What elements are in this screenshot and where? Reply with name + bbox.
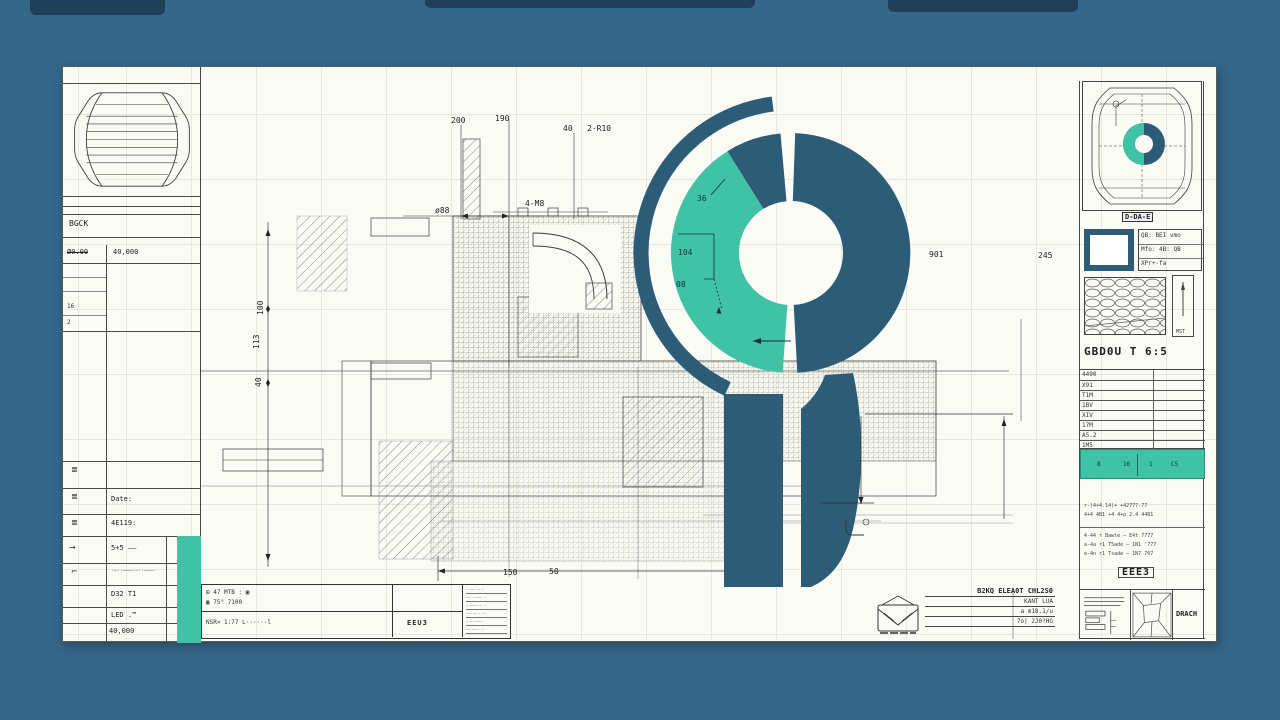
note-row: e-4n r1 Tsade — 1N7 707 — [1084, 551, 1202, 557]
micro-text-line: –– ––– – – — [466, 627, 507, 634]
drawing-sheet: 200 190 40 2-R10 ø88 4-M8 100 113 40 150… — [62, 66, 1217, 642]
approval-text-block: B2KQ ELEA0T CHL2S0 KANT LUA a m18.1/u 7o… — [925, 586, 1055, 627]
mini-logo-hole — [1135, 135, 1153, 153]
panel-header-label: BGCK — [69, 219, 88, 228]
drawing-title-text: B2KQ ELEA0T CHL2S0 — [925, 586, 1055, 597]
teal-cell: C5 — [1171, 461, 1178, 468]
spec-row-label: 1M5 — [1082, 442, 1093, 449]
right-info-panel: D-DA-E QB: BEI vmo Mfo: 4B: QB XPr+-fa — [1079, 81, 1204, 639]
dim-label: 150 — [503, 568, 518, 577]
row-label: LED .™ — [111, 611, 136, 619]
view-tag-label: D-DA-E — [1122, 212, 1153, 222]
logo-dark-ring-right — [793, 133, 911, 373]
spec-table: 4490 X91 T1M 1BV XIV 17M A5.2 1M5 — [1080, 369, 1205, 449]
dim-label: 4-M8 — [525, 199, 544, 208]
teal-highlight-row: 8 16 1 C5 — [1080, 449, 1205, 479]
spec-value: 40,000 — [113, 248, 138, 256]
machined-part-section-view — [201, 119, 1021, 639]
dim-label: 190 — [495, 114, 510, 123]
stamp-code-label: EEE3 — [1118, 567, 1154, 578]
corner-symbol-icon: ⌐ — [71, 567, 78, 576]
row-label: ·–··–––·–··–––· — [111, 568, 165, 574]
title-block-text: ▣ 75° 7100 — [206, 599, 242, 606]
dim-label: ø88 — [435, 206, 450, 215]
title-block-table: ⊞ 47 MTB : ▣ ▣ 75° 7100 NSR× 1:77 L·····… — [201, 584, 511, 639]
hatch-symbol-icon: ≣ — [71, 465, 80, 474]
row-label: 5+5 —— — [111, 544, 136, 552]
sub-value: 2 — [67, 319, 71, 326]
teal-cell: 1 — [1149, 461, 1153, 468]
dim-label: 36 — [697, 194, 707, 203]
micro-text-line: – –––– –– – — [466, 603, 507, 610]
probe-needle-drawing — [1173, 276, 1193, 336]
spec-row-label: 4490 — [1082, 371, 1096, 378]
legend-row: QB: BEI vmo — [1141, 232, 1181, 239]
spec-row-label: A5.2 — [1082, 432, 1096, 439]
title-block-text: ⊞ 47 MTB : ▣ — [206, 589, 249, 596]
blueprint-wallpaper: 200 190 40 2-R10 ø88 4-M8 100 113 40 150… — [0, 0, 1280, 720]
dim-label: 100 — [256, 300, 265, 315]
part-front-view-drawing — [71, 87, 193, 192]
dim-label: 245 — [1038, 251, 1053, 260]
spec-label: Ø0.00 — [67, 248, 88, 256]
sub-value: 16 — [67, 303, 74, 310]
dim-label: 2-R10 — [587, 124, 611, 133]
micro-text-line: –– – –––– – — [466, 595, 507, 602]
ink-smudge — [888, 0, 1078, 12]
legend-swatch — [1084, 229, 1134, 271]
schedule-lines-drawing — [1082, 592, 1128, 638]
technical-drawing-canvas: 200 190 40 2-R10 ø88 4-M8 100 113 40 150… — [63, 67, 1218, 643]
approval-row: KANT LUA — [925, 597, 1055, 607]
dim-label: 901 — [929, 250, 944, 259]
approval-row: a m18.1/u — [925, 607, 1055, 617]
note-row: a-4a r1 T5ade — 1N1 '777 — [1084, 542, 1202, 548]
micro-note: r-(4+4.14)+ +42777-77 — [1084, 503, 1202, 509]
legend-row: Mfo: 4B: QB — [1141, 246, 1181, 253]
dim-label: 200 — [451, 116, 466, 125]
dim-label: 40 — [254, 377, 263, 387]
title-block-text: NSR× 1:77 L······l — [206, 619, 271, 626]
spec-row-label: T1M — [1082, 392, 1093, 399]
note-row: 4-44 r Bawte — E4t 7777 — [1084, 533, 1202, 539]
ink-smudge — [425, 0, 755, 8]
teal-accent-column — [177, 536, 201, 643]
spec-row-label: 17M — [1082, 422, 1093, 429]
perspective-sketch-drawing — [1132, 591, 1172, 639]
dim-label: 104 — [678, 248, 693, 257]
approval-row: 7o| 2J0?HG — [925, 617, 1055, 627]
logo-left-stem — [724, 394, 783, 587]
logo-right-stem — [801, 373, 861, 587]
dim-label: 113 — [252, 334, 261, 349]
hatch-symbol-icon: ≣ — [71, 518, 80, 527]
row-label: D32 T1 — [111, 590, 136, 598]
title-block-code: EEU3 — [407, 619, 428, 627]
spec-row-label: XIV — [1082, 412, 1093, 419]
micro-text-line: – ––– –– – — [466, 587, 507, 594]
micro-note: 4+4 4B1 +4 4+p 2.4 44B1 — [1084, 512, 1202, 518]
approval-stamp-icon — [876, 593, 920, 639]
dim-label: 50 — [549, 567, 559, 576]
dim-label: 40 — [563, 124, 573, 133]
micro-text-line: ––– –– – –– — [466, 611, 507, 618]
corner-stamp-label: DRACH — [1176, 610, 1197, 618]
hatch-symbol-icon: ≣ — [71, 492, 80, 501]
legend-row: XPr+-fa — [1141, 260, 1166, 267]
left-info-panel: BGCK Ø0.00 40,000 16 2 ≣ ≣ ≣ — [63, 67, 201, 643]
dim-label: 08 — [676, 280, 686, 289]
row-total: 40,000 — [109, 627, 134, 635]
arrow-symbol-icon: → — [69, 543, 76, 552]
part-number-label: GBD0U T 6:5 — [1084, 347, 1168, 356]
row-label: 4E119: — [111, 519, 136, 527]
spec-row-label: 1BV — [1082, 402, 1093, 409]
mesh-detail-drawing — [1085, 278, 1165, 334]
row-label: Date: — [111, 495, 132, 503]
ink-smudge — [30, 0, 165, 15]
spec-row-label: X91 — [1082, 382, 1093, 389]
part-top-view-drawing — [1083, 82, 1201, 210]
needle-caption: MST — [1176, 329, 1185, 335]
teal-cell: 8 — [1097, 461, 1101, 468]
micro-text-line: – –– –––– — [466, 619, 507, 626]
teal-cell: 16 — [1123, 461, 1130, 468]
